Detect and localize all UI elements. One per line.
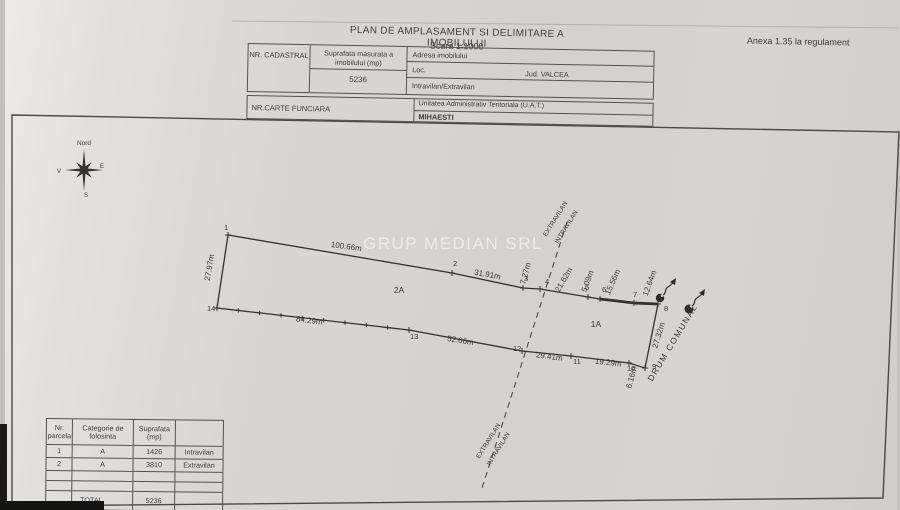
table-cell	[133, 482, 175, 492]
suprafata-cell: Suprafata masurata a imobilului (mp) 523…	[310, 45, 408, 94]
nr-cadastral-cell: NR. CADASTRAL	[248, 44, 311, 92]
carte-funciara-label: NR.CARTE FUNCIARA	[247, 96, 414, 121]
table-cell	[46, 471, 72, 481]
photo-dark-corner	[0, 501, 104, 510]
annex-note: Anexa 1.35 la regulament	[747, 36, 850, 48]
table-cell: 1426	[134, 446, 176, 459]
table-cell	[175, 472, 222, 482]
table-cell	[133, 472, 175, 482]
suprafata-value: 5236	[310, 69, 406, 85]
watermark: GRUP MEDIAN SRL	[363, 234, 543, 254]
table-cell: A	[73, 445, 134, 459]
parcel-summary-table: Nr. parcela Categorie de folosinta Supra…	[45, 418, 224, 510]
table-cell: Intravilan	[176, 446, 223, 459]
col-header: Nr. parcela	[47, 419, 73, 445]
loc-label: Loc.	[412, 65, 426, 74]
cadastral-plan-sheet: Nord E S V 1234567891011121314100.66m31.…	[0, 0, 900, 510]
table-cell	[72, 481, 133, 492]
table-cell: Extravilan	[175, 459, 222, 472]
table-cell	[46, 481, 72, 491]
carte-funciara-table: NR.CARTE FUNCIARA Unitatea Administrativ…	[246, 95, 653, 127]
col-header: Suprafata (mp)	[134, 420, 176, 446]
table-cell	[175, 482, 222, 492]
total-value: 5236	[133, 492, 175, 510]
photo-dark-edge	[0, 424, 7, 502]
table-cell	[72, 471, 133, 482]
suprafata-label: Suprafata masurata a imobilului (mp)	[310, 45, 406, 71]
col-header: Categorie de folosinta	[73, 419, 134, 446]
cadastral-header-table: NR. CADASTRAL Suprafata masurata a imobi…	[247, 43, 655, 100]
table-cell: 3810	[133, 459, 175, 472]
table-cell: 2	[46, 458, 72, 471]
adresa-cell: Adresa imobilului Loc. Jud. VALCEA Intra…	[407, 47, 654, 99]
table-cell	[175, 492, 222, 510]
col-header	[176, 420, 223, 446]
table-cell: 1	[47, 445, 73, 458]
uat-cell: Unitatea Administrativ Teritoriala (U.A.…	[414, 99, 652, 126]
judet-value: Jud. VALCEA	[525, 69, 569, 79]
table-cell: A	[72, 458, 133, 472]
